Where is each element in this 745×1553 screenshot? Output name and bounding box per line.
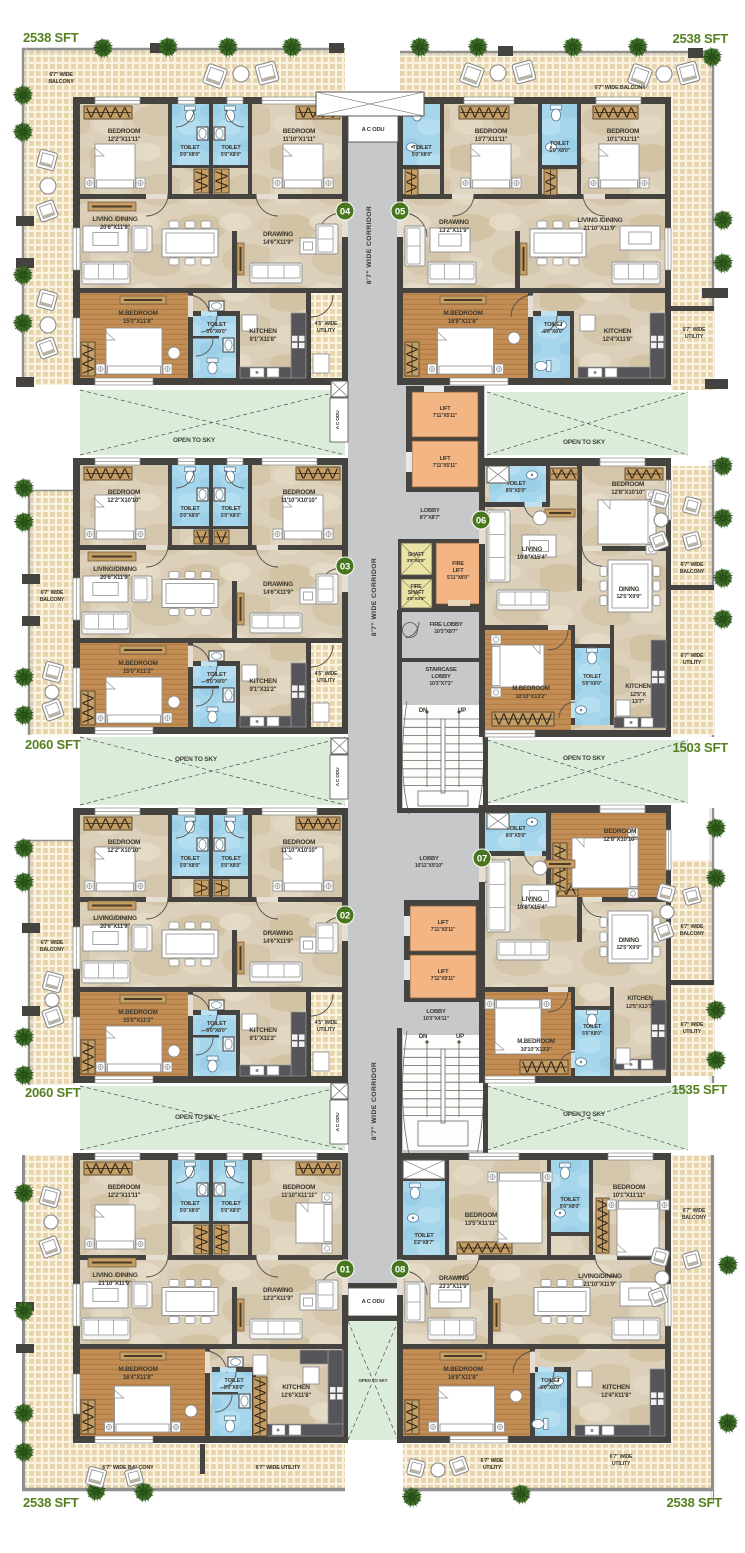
svg-text:6'7" WIDE: 6'7" WIDE	[683, 1208, 706, 1214]
svg-text:9'1"X11'2": 9'1"X11'2"	[250, 687, 277, 693]
svg-text:14'6"X11'9": 14'6"X11'9"	[263, 939, 293, 945]
svg-text:BALCONY: BALCONY	[680, 569, 705, 575]
svg-text:LIFT: LIFT	[438, 969, 450, 975]
svg-text:OPEN TO SKY: OPEN TO SKY	[358, 1378, 387, 1383]
svg-text:10'10"X13'2": 10'10"X13'2"	[515, 694, 547, 700]
svg-text:3'8"X3'8": 3'8"X3'8"	[407, 596, 426, 602]
svg-text:LOBBY: LOBBY	[431, 674, 451, 680]
svg-text:5'11"X8'0": 5'11"X8'0"	[447, 575, 470, 581]
svg-text:LIVING /DINING: LIVING /DINING	[577, 217, 622, 224]
svg-text:2538 SFT: 2538 SFT	[667, 1495, 723, 1510]
svg-text:M.BEDROOM: M.BEDROOM	[517, 1038, 554, 1045]
svg-text:UTILITY: UTILITY	[317, 328, 336, 334]
svg-text:LOBBY: LOBBY	[419, 856, 439, 862]
svg-text:11'10"X10'10": 11'10"X10'10"	[281, 498, 318, 504]
svg-text:BALCONY: BALCONY	[40, 597, 65, 603]
svg-text:BEDROOM: BEDROOM	[607, 128, 640, 135]
svg-text:5'0"X8'0": 5'0"X8'0"	[180, 152, 201, 158]
svg-text:11'10"X1'11": 11'10"X1'11"	[283, 137, 316, 143]
svg-text:5'0"X8'0": 5'0"X8'0"	[560, 1204, 581, 1210]
svg-text:LIVING/DINING: LIVING/DINING	[93, 566, 137, 573]
svg-text:M.BEDROOM: M.BEDROOM	[118, 310, 157, 317]
svg-text:BALCONY: BALCONY	[40, 947, 65, 953]
svg-text:BEDROOM: BEDROOM	[613, 1184, 646, 1191]
svg-text:21'10"X11'9": 21'10"X11'9"	[583, 226, 617, 232]
svg-text:7'11"X5'11": 7'11"X5'11"	[433, 463, 458, 469]
svg-text:TOILET: TOILET	[180, 506, 200, 512]
svg-text:7'11"X5'11": 7'11"X5'11"	[431, 927, 456, 933]
svg-text:BALCONY: BALCONY	[682, 1215, 707, 1221]
svg-text:16'8"X11'8": 16'8"X11'8"	[448, 1375, 478, 1381]
svg-text:5'0"X8'0": 5'0"X8'0"	[180, 1208, 201, 1214]
svg-text:TOILET: TOILET	[221, 506, 241, 512]
svg-text:TOILET: TOILET	[544, 322, 564, 328]
svg-text:KITCHEN: KITCHEN	[249, 328, 277, 335]
svg-text:12'5"X13'7": 12'5"X13'7"	[626, 1004, 655, 1010]
svg-text:5'0"X8'0": 5'0"X8'0"	[221, 513, 242, 519]
svg-text:10'1"X11'11": 10'1"X11'11"	[613, 1193, 646, 1199]
svg-text:6'7" WIDE: 6'7" WIDE	[49, 72, 73, 78]
svg-text:BALCONY: BALCONY	[48, 79, 74, 85]
svg-text:14'6"X11'9": 14'6"X11'9"	[263, 240, 293, 246]
svg-text:BEDROOM: BEDROOM	[283, 839, 316, 846]
svg-text:BEDROOM: BEDROOM	[475, 128, 508, 135]
svg-text:KITCHEN: KITCHEN	[282, 1384, 310, 1391]
svg-text:10'3"X8'7": 10'3"X8'7"	[434, 629, 458, 635]
svg-text:FIRE: FIRE	[452, 561, 464, 567]
svg-text:BEDROOM: BEDROOM	[108, 489, 141, 496]
svg-text:A C ODU: A C ODU	[335, 767, 341, 786]
svg-text:16'4"X11'8": 16'4"X11'8"	[123, 1375, 153, 1381]
svg-text:DRAWING: DRAWING	[263, 1287, 293, 1294]
svg-text:TOILET: TOILET	[221, 1201, 241, 1207]
svg-text:M.BEDROOM: M.BEDROOM	[512, 685, 549, 692]
svg-text:10'3"X4'11": 10'3"X4'11"	[423, 1016, 449, 1022]
svg-text:TOILET: TOILET	[207, 322, 227, 328]
svg-text:2060 SFT: 2060 SFT	[25, 1085, 81, 1100]
svg-text:UTILITY: UTILITY	[612, 1461, 631, 1467]
svg-text:21'10"X11'9": 21'10"X11'9"	[583, 1282, 617, 1288]
svg-text:LIVING /DINING: LIVING /DINING	[92, 1272, 137, 1279]
svg-text:5'0"X8'0": 5'0"X8'0"	[221, 863, 242, 869]
svg-text:TOILET: TOILET	[207, 672, 227, 678]
svg-text:02: 02	[340, 911, 350, 922]
svg-text:2060 SFT: 2060 SFT	[25, 737, 81, 752]
svg-text:BEDROOM: BEDROOM	[283, 128, 316, 135]
svg-text:10'3"X7'3": 10'3"X7'3"	[429, 681, 453, 687]
svg-text:8’7" WIDE CORRIDOR: 8’7" WIDE CORRIDOR	[371, 558, 378, 636]
svg-text:UP: UP	[458, 708, 466, 714]
svg-text:13'7"X11'11": 13'7"X11'11"	[475, 137, 508, 143]
svg-text:5'0"X8'0": 5'0"X8'0"	[206, 1028, 227, 1034]
svg-text:M.BEDROOM: M.BEDROOM	[118, 1009, 157, 1016]
svg-text:M.BEDROOM: M.BEDROOM	[443, 310, 482, 317]
svg-text:DN: DN	[419, 1034, 427, 1040]
svg-text:12'8"X10'10": 12'8"X10'10"	[611, 490, 645, 496]
svg-text:10'8"X15'4": 10'8"X15'4"	[517, 555, 548, 561]
svg-text:12'4"X11'8": 12'4"X11'8"	[601, 1393, 631, 1399]
svg-text:6'7" WIDE: 6'7" WIDE	[481, 1458, 504, 1464]
svg-text:KITCHEN: KITCHEN	[249, 678, 277, 685]
svg-text:A C ODU: A C ODU	[335, 1112, 341, 1131]
svg-text:2538 SFT: 2538 SFT	[23, 30, 79, 45]
svg-text:13'7": 13'7"	[632, 699, 645, 705]
svg-text:08: 08	[395, 1265, 405, 1276]
svg-text:23'3"X11'9": 23'3"X11'9"	[439, 1284, 469, 1290]
svg-text:STAIRCASE: STAIRCASE	[425, 667, 457, 673]
svg-text:DRAWING: DRAWING	[439, 219, 469, 226]
svg-text:LIFT: LIFT	[453, 568, 465, 574]
svg-text:TOILET: TOILET	[583, 674, 602, 680]
svg-text:20'6"X11'9": 20'6"X11'9"	[100, 924, 130, 930]
svg-text:8'0"X5'0": 8'0"X5'0"	[506, 833, 527, 839]
svg-text:OPEN TO SKY: OPEN TO SKY	[173, 437, 216, 444]
svg-text:TOILET: TOILET	[412, 145, 432, 151]
svg-text:8’7" WIDE CORRIDOR: 8’7" WIDE CORRIDOR	[366, 206, 373, 284]
svg-text:12'6"X11'8": 12'6"X11'8"	[281, 1393, 311, 1399]
svg-text:6'7" WIDE BALCONY: 6'7" WIDE BALCONY	[594, 85, 646, 91]
svg-text:LIVING /DINING: LIVING /DINING	[92, 216, 137, 223]
svg-text:6'7" WIDE: 6'7" WIDE	[681, 562, 704, 568]
svg-text:LIVING: LIVING	[522, 546, 543, 553]
svg-text:BALCONY: BALCONY	[680, 931, 705, 937]
svg-text:7'11"X5'11": 7'11"X5'11"	[431, 976, 456, 982]
svg-text:TOILET: TOILET	[207, 1021, 227, 1027]
svg-text:4'5" WIDE: 4'5" WIDE	[315, 321, 338, 327]
svg-text:FIRE LOBBY: FIRE LOBBY	[429, 622, 462, 628]
svg-text:9'1"X11'8": 9'1"X11'8"	[250, 337, 277, 343]
svg-text:03: 03	[340, 562, 350, 573]
svg-text:TOILET: TOILET	[180, 856, 200, 862]
svg-text:6'7" WIDE: 6'7" WIDE	[681, 653, 704, 659]
svg-text:TOILET: TOILET	[541, 1378, 561, 1384]
svg-text:12'2"X11'11": 12'2"X11'11"	[108, 137, 141, 143]
svg-text:12'5"X9'9": 12'5"X9'9"	[616, 594, 642, 600]
svg-text:OPEN TO SKY: OPEN TO SKY	[563, 755, 606, 762]
svg-text:13'5"X11'11": 13'5"X11'11"	[465, 1221, 498, 1227]
svg-text:LIVING/DINING: LIVING/DINING	[93, 915, 137, 922]
svg-text:07: 07	[477, 854, 487, 865]
svg-text:LIVING/DINING: LIVING/DINING	[578, 1273, 622, 1280]
svg-text:LIVING: LIVING	[522, 896, 543, 903]
svg-text:15'0"X11'2": 15'0"X11'2"	[123, 669, 153, 675]
svg-text:KITCHEN: KITCHEN	[602, 1384, 630, 1391]
svg-text:4'5" WIDE: 4'5" WIDE	[315, 1020, 338, 1026]
svg-text:DRAWING: DRAWING	[439, 1275, 469, 1282]
svg-text:DN: DN	[419, 708, 427, 714]
svg-text:BEDROOM: BEDROOM	[108, 1184, 141, 1191]
svg-text:21'10"X11'9": 21'10"X11'9"	[98, 1281, 132, 1287]
svg-text:DRAWING: DRAWING	[263, 231, 293, 238]
svg-text:12'5"X: 12'5"X	[630, 692, 646, 698]
svg-text:5'0"X8'0": 5'0"X8'0"	[221, 1208, 242, 1214]
svg-text:6'7" WIDE: 6'7" WIDE	[681, 1022, 704, 1028]
svg-text:14'6"X11'9": 14'6"X11'9"	[263, 590, 293, 596]
svg-text:TOILET: TOILET	[560, 1197, 580, 1203]
svg-text:M.BEDROOM: M.BEDROOM	[443, 1366, 482, 1373]
svg-text:06: 06	[476, 516, 486, 527]
svg-text:12'8"X10'10": 12'8"X10'10"	[603, 837, 637, 843]
svg-text:10'1"X11'11": 10'1"X11'11"	[607, 137, 640, 143]
svg-text:5'0"X8'0": 5'0"X8'0"	[206, 329, 227, 335]
svg-text:BEDROOM: BEDROOM	[612, 481, 645, 488]
svg-text:A C ODU: A C ODU	[362, 1299, 385, 1305]
svg-text:UTILITY: UTILITY	[683, 1029, 702, 1035]
svg-text:6'7" WIDE: 6'7" WIDE	[41, 940, 64, 946]
svg-text:TOILET: TOILET	[180, 145, 200, 151]
svg-text:12'2"X10'10": 12'2"X10'10"	[107, 848, 141, 854]
svg-text:DRAWING: DRAWING	[263, 930, 293, 937]
svg-text:13'2"X11'9": 13'2"X11'9"	[439, 228, 469, 234]
svg-text:SHAFT: SHAFT	[408, 552, 425, 558]
svg-text:12'2"X10'10": 12'2"X10'10"	[107, 498, 141, 504]
svg-text:5'0"X8'0": 5'0"X8'0"	[180, 513, 201, 519]
svg-text:10'11"X9'10": 10'11"X9'10"	[415, 863, 444, 869]
svg-text:OPEN TO SKY: OPEN TO SKY	[175, 1114, 218, 1121]
svg-text:UTILITY: UTILITY	[685, 334, 704, 340]
svg-text:2538 SFT: 2538 SFT	[23, 1495, 79, 1510]
svg-text:6'7" WIDE: 6'7" WIDE	[681, 924, 704, 930]
svg-text:5'0"X8'0": 5'0"X8'0"	[412, 152, 433, 158]
svg-text:TOILET: TOILET	[221, 145, 241, 151]
svg-text:TOILET: TOILET	[180, 1201, 200, 1207]
svg-text:LIFT: LIFT	[440, 456, 452, 462]
svg-text:5'0"X8'0": 5'0"X8'0"	[549, 148, 570, 154]
svg-text:12'5"X9'9": 12'5"X9'9"	[616, 945, 642, 951]
svg-text:5'0"X8'0": 5'0"X8'0"	[221, 152, 242, 158]
svg-text:A C ODU: A C ODU	[335, 410, 341, 429]
svg-text:10'8"X15'4": 10'8"X15'4"	[517, 905, 548, 911]
svg-text:8'0"X5'0": 8'0"X5'0"	[506, 488, 527, 494]
svg-text:UTILITY: UTILITY	[683, 660, 702, 666]
svg-text:2538 SFT: 2538 SFT	[673, 31, 729, 46]
svg-text:TOILET: TOILET	[414, 1233, 434, 1239]
svg-text:TOILET: TOILET	[224, 1378, 244, 1384]
svg-text:11'10"X11'11": 11'10"X11'11"	[281, 1193, 317, 1199]
svg-text:5'0"X6'0": 5'0"X6'0"	[582, 681, 603, 687]
svg-text:OPEN TO SKY: OPEN TO SKY	[175, 756, 218, 763]
svg-text:OPEN TO SKY: OPEN TO SKY	[563, 439, 606, 446]
svg-text:1535 SFT: 1535 SFT	[672, 1082, 728, 1097]
svg-text:15'0"X11'2": 15'0"X11'2"	[123, 1018, 153, 1024]
svg-text:TOILET: TOILET	[583, 1024, 602, 1030]
svg-text:4'5" WIDE: 4'5" WIDE	[315, 671, 338, 677]
svg-text:KITCHEN: KITCHEN	[604, 328, 632, 335]
svg-text:5'0"X8'0": 5'0"X8'0"	[540, 1385, 561, 1391]
svg-text:10'10"X13'2": 10'10"X13'2"	[520, 1047, 552, 1053]
svg-text:5'0"X8'0": 5'0"X8'0"	[180, 863, 201, 869]
svg-text:KITCHEN: KITCHEN	[627, 996, 652, 1002]
svg-text:OPEN TO SKY: OPEN TO SKY	[563, 1111, 606, 1118]
svg-text:5'0"X8'0": 5'0"X8'0"	[582, 1031, 603, 1037]
svg-text:8'7"X8'7": 8'7"X8'7"	[420, 515, 441, 521]
svg-text:UTILITY: UTILITY	[317, 678, 336, 684]
svg-text:TOILET: TOILET	[550, 141, 570, 147]
svg-text:13'2"X11'9": 13'2"X11'9"	[263, 1296, 293, 1302]
svg-text:6'7" WIDE UTILITY: 6'7" WIDE UTILITY	[256, 1465, 301, 1471]
svg-text:6'7" WIDE: 6'7" WIDE	[41, 590, 64, 596]
svg-text:20'6"X11'9": 20'6"X11'9"	[100, 575, 130, 581]
svg-text:DINING: DINING	[619, 586, 640, 593]
svg-text:04: 04	[340, 207, 351, 218]
svg-text:01: 01	[340, 1265, 351, 1276]
svg-text:BEDROOM: BEDROOM	[283, 489, 316, 496]
svg-text:5'2"X8'7": 5'2"X8'7"	[414, 1240, 435, 1246]
svg-text:UP: UP	[456, 1034, 464, 1040]
svg-text:16'8"X11'8": 16'8"X11'8"	[448, 319, 478, 325]
svg-text:5'0"X8'0": 5'0"X8'0"	[206, 679, 227, 685]
svg-text:12'2"X11'11": 12'2"X11'11"	[108, 1193, 141, 1199]
svg-text:12'4"X11'8": 12'4"X11'8"	[602, 337, 632, 343]
svg-text:UTILITY: UTILITY	[483, 1465, 502, 1471]
svg-text:M.BEDROOM: M.BEDROOM	[118, 1366, 157, 1373]
svg-text:LIFT: LIFT	[438, 920, 450, 926]
svg-text:KITCHEN: KITCHEN	[249, 1027, 277, 1034]
svg-text:UTILITY: UTILITY	[317, 1027, 336, 1033]
svg-text:KITCHEN: KITCHEN	[625, 684, 650, 690]
svg-text:05: 05	[395, 207, 406, 218]
svg-text:1503 SFT: 1503 SFT	[673, 740, 729, 755]
svg-text:6'7" WIDE: 6'7" WIDE	[610, 1454, 633, 1460]
svg-text:3'8"X3'8": 3'8"X3'8"	[407, 558, 426, 564]
svg-text:SHAFT: SHAFT	[408, 590, 425, 596]
svg-text:6'7" WIDE: 6'7" WIDE	[683, 327, 706, 333]
svg-text:DINING: DINING	[619, 937, 640, 944]
svg-text:BEDROOM: BEDROOM	[283, 1184, 316, 1191]
svg-text:LOBBY: LOBBY	[420, 508, 440, 514]
svg-text:7'11"X5'11": 7'11"X5'11"	[433, 413, 458, 419]
svg-text:BEDROOM: BEDROOM	[465, 1212, 498, 1219]
svg-text:TOILET: TOILET	[221, 856, 241, 862]
svg-text:5'0"X8'0": 5'0"X8'0"	[543, 329, 564, 335]
svg-text:DRAWING: DRAWING	[263, 581, 293, 588]
svg-text:BEDROOM: BEDROOM	[108, 128, 141, 135]
svg-text:M.BEDROOM: M.BEDROOM	[118, 660, 157, 667]
svg-text:5'0"X8'0": 5'0"X8'0"	[224, 1385, 245, 1391]
svg-text:BEDROOM: BEDROOM	[604, 828, 637, 835]
svg-text:11'10"X10'10": 11'10"X10'10"	[281, 848, 318, 854]
svg-text:BEDROOM: BEDROOM	[108, 839, 141, 846]
svg-text:8’7" WIDE CORRIDOR: 8’7" WIDE CORRIDOR	[371, 1062, 378, 1140]
svg-text:9'1"X11'2": 9'1"X11'2"	[250, 1036, 277, 1042]
svg-text:LIFT: LIFT	[440, 406, 452, 412]
svg-text:LOBBY: LOBBY	[426, 1009, 446, 1015]
svg-text:20'6"X11'9": 20'6"X11'9"	[100, 225, 130, 231]
svg-text:15'0"X11'8": 15'0"X11'8"	[123, 319, 153, 325]
svg-text:A C ODU: A C ODU	[362, 127, 385, 133]
